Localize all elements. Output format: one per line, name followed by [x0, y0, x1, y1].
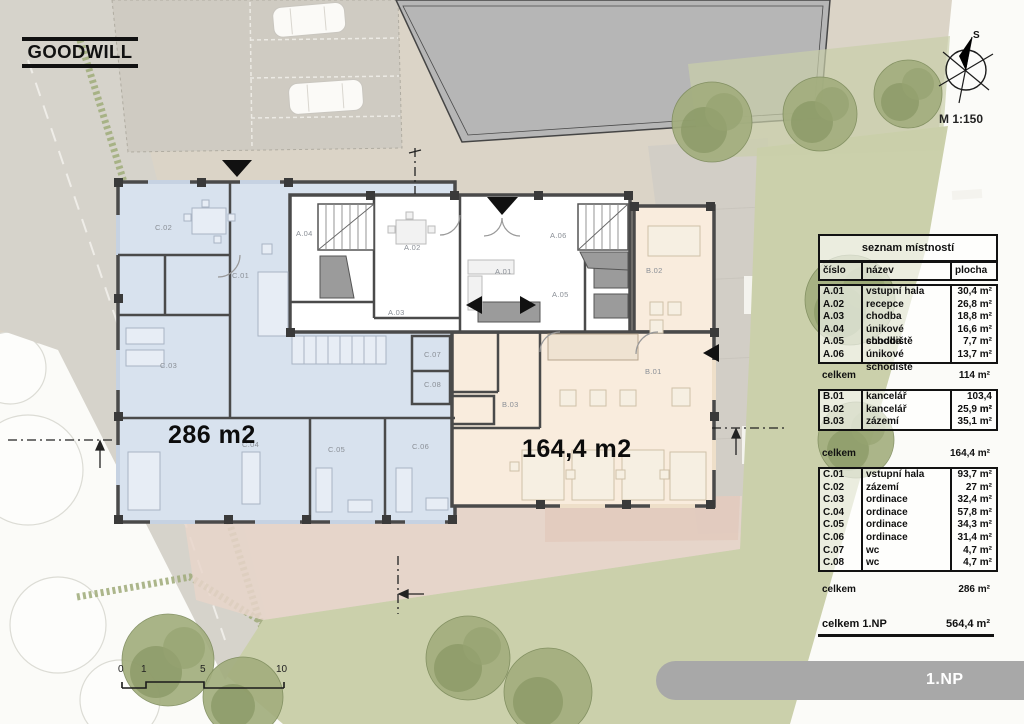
- room-name: vstupní hala: [863, 469, 952, 482]
- room-area: 16,6 m²: [952, 324, 996, 337]
- legend-grand-total: celkem 1.NP 564,4 m²: [818, 618, 994, 637]
- room-number: A.02: [820, 299, 863, 312]
- room-label-a05: A.05: [552, 290, 569, 299]
- total-value: 286 m²: [958, 584, 990, 595]
- room-area: 34,3 m²: [952, 519, 996, 532]
- tree: [874, 60, 942, 128]
- room-number: C.01: [820, 469, 863, 482]
- room-area: 7,7 m²: [952, 336, 996, 349]
- legend-row: A.04únikové schodiště16,6 m²: [820, 324, 996, 337]
- room-label-c02: C.02: [155, 223, 172, 232]
- legend-title: seznam místností: [818, 234, 998, 262]
- scale-tick-5: 5: [200, 664, 206, 675]
- legend-row: C.07wc4,7 m²: [820, 545, 996, 558]
- room-label-a02: A.02: [404, 243, 421, 252]
- room-label-a01: A.01: [495, 267, 512, 276]
- room-number: B.01: [820, 391, 863, 404]
- room-number: A.04: [820, 324, 863, 337]
- room-number: B.03: [820, 416, 863, 429]
- room-label-b03: B.03: [502, 400, 519, 409]
- room-area: 4,7 m²: [952, 557, 996, 570]
- room-number: C.05: [820, 519, 863, 532]
- room-label-a06: A.06: [550, 231, 567, 240]
- room-area: 32,4 m²: [952, 494, 996, 507]
- legend-total-c: celkem 286 m²: [818, 584, 994, 595]
- room-label-a03: A.03: [388, 308, 405, 317]
- legend-row: C.05ordinace34,3 m²: [820, 519, 996, 532]
- room-label-a04: A.04: [296, 229, 313, 238]
- area-label-left: 286 m2: [168, 421, 256, 450]
- north-label: S: [973, 30, 980, 41]
- legend-row: C.01vstupní hala93,7 m²: [820, 469, 996, 482]
- scale-bar: 0 1 5 10: [116, 664, 301, 694]
- legend-row: A.03chodba18,8 m²: [820, 311, 996, 324]
- legend-section-c: C.01vstupní hala93,7 m² C.02zázemí27 m² …: [818, 467, 998, 572]
- legend-row: A.06únikové schodiště13,7 m²: [820, 349, 996, 362]
- legend-row: A.02recepce26,8 m²: [820, 299, 996, 312]
- room-number: A.01: [820, 286, 863, 299]
- room-area: 4,7 m²: [952, 545, 996, 558]
- legend-row: C.03ordinace32,4 m²: [820, 494, 996, 507]
- legend-row: C.08wc4,7 m²: [820, 557, 996, 570]
- room-name: ordinace: [863, 494, 952, 507]
- total-value: 164,4 m²: [950, 448, 990, 459]
- room-number: A.03: [820, 311, 863, 324]
- room-name: chodba: [863, 336, 952, 349]
- legend-total-a: celkem 114 m²: [818, 370, 994, 381]
- col-area: plocha: [952, 263, 996, 279]
- total-label: celkem: [822, 584, 856, 595]
- room-area: 25,9 m²: [952, 404, 996, 417]
- room-area: 31,4 m²: [952, 532, 996, 545]
- tree: [426, 616, 510, 700]
- room-area: 35,1 m²: [952, 416, 996, 429]
- room-label-c01: C.01: [232, 271, 249, 280]
- scale-tick-10: 10: [276, 664, 287, 675]
- room-name: ordinace: [863, 532, 952, 545]
- floor-tab-label: 1.NP: [926, 671, 964, 689]
- stairs-a04: [318, 204, 374, 250]
- room-label-c06: C.06: [412, 442, 429, 451]
- legend-row: B.01kancelář103,4 m²: [820, 391, 996, 404]
- legend-row: C.02zázemí27 m²: [820, 482, 996, 495]
- room-name: únikové schodiště: [863, 324, 952, 337]
- scale-tick-1: 1: [141, 664, 147, 675]
- legend-row: A.05chodba7,7 m²: [820, 336, 996, 349]
- room-name: vstupní hala: [863, 286, 952, 299]
- room-area: 30,4 m²: [952, 286, 996, 299]
- room-name: zázemí: [863, 416, 952, 429]
- scale-label: M 1:150: [939, 112, 983, 126]
- room-label-b01: B.01: [645, 367, 662, 376]
- legend-row: A.01vstupní hala30,4 m²: [820, 286, 996, 299]
- room-name: kancelář: [863, 404, 952, 417]
- room-label-c07: C.07: [424, 350, 441, 359]
- room-number: A.05: [820, 336, 863, 349]
- legend-row: B.02kancelář25,9 m²: [820, 404, 996, 417]
- total-label: celkem: [822, 370, 856, 381]
- room-number: A.06: [820, 349, 863, 362]
- grand-total-label: celkem 1.NP: [822, 618, 887, 630]
- room-number: C.04: [820, 507, 863, 520]
- floor-tab-1np[interactable]: 1.NP: [656, 661, 1024, 700]
- room-name: ordinace: [863, 519, 952, 532]
- room-number: C.07: [820, 545, 863, 558]
- legend-section-b: B.01kancelář103,4 m² B.02kancelář25,9 m²…: [818, 389, 998, 431]
- grand-total-value: 564,4 m²: [946, 618, 990, 630]
- tree: [783, 77, 857, 151]
- room-number: C.03: [820, 494, 863, 507]
- legend-row: C.04ordinace57,8 m²: [820, 507, 996, 520]
- total-value: 114 m²: [959, 370, 990, 381]
- room-name: únikové schodiště: [863, 349, 952, 362]
- compass-rose: [933, 30, 1005, 110]
- col-name: název: [863, 263, 952, 279]
- room-label-c03: C.03: [160, 361, 177, 370]
- legend-section-a: A.01vstupní hala30,4 m² A.02recepce26,8 …: [818, 284, 998, 364]
- room-area: 13,7 m²: [952, 349, 996, 362]
- area-label-right: 164,4 m2: [522, 435, 632, 464]
- room-name: chodba: [863, 311, 952, 324]
- room-label-c05: C.05: [328, 445, 345, 454]
- room-area: 93,7 m²: [952, 469, 996, 482]
- room-label-c08: C.08: [424, 380, 441, 389]
- col-number: číslo: [820, 263, 863, 279]
- room-area: 27 m²: [952, 482, 996, 495]
- room-name: recepce: [863, 299, 952, 312]
- north-compass: S M 1:150: [933, 30, 1017, 130]
- room-number: B.02: [820, 404, 863, 417]
- stairs-a06: [578, 204, 628, 250]
- total-label: celkem: [822, 448, 856, 459]
- legend-header: číslo název plocha: [818, 261, 998, 281]
- tree: [672, 82, 752, 162]
- floorplan-sheet: GOODWILL C.02 C.01 C.03 C.04 C.05 C.06 C…: [0, 0, 1024, 724]
- room-name: ordinace: [863, 507, 952, 520]
- room-area: 57,8 m²: [952, 507, 996, 520]
- goodwill-logo: GOODWILL: [22, 37, 138, 68]
- room-name: wc: [863, 545, 952, 558]
- room-number: C.02: [820, 482, 863, 495]
- legend-total-b: celkem 164,4 m²: [818, 448, 994, 459]
- legend-row: B.03zázemí35,1 m²: [820, 416, 996, 429]
- room-name: kancelář: [863, 391, 952, 404]
- room-label-b02: B.02: [646, 266, 663, 275]
- room-name: wc: [863, 557, 952, 570]
- room-area: 18,8 m²: [952, 311, 996, 324]
- room-area: 103,4 m²: [952, 391, 996, 404]
- room-area: 26,8 m²: [952, 299, 996, 312]
- room-name: zázemí: [863, 482, 952, 495]
- scale-tick-0: 0: [118, 664, 124, 675]
- room-number: C.06: [820, 532, 863, 545]
- legend-row: C.06ordinace31,4 m²: [820, 532, 996, 545]
- room-number: C.08: [820, 557, 863, 570]
